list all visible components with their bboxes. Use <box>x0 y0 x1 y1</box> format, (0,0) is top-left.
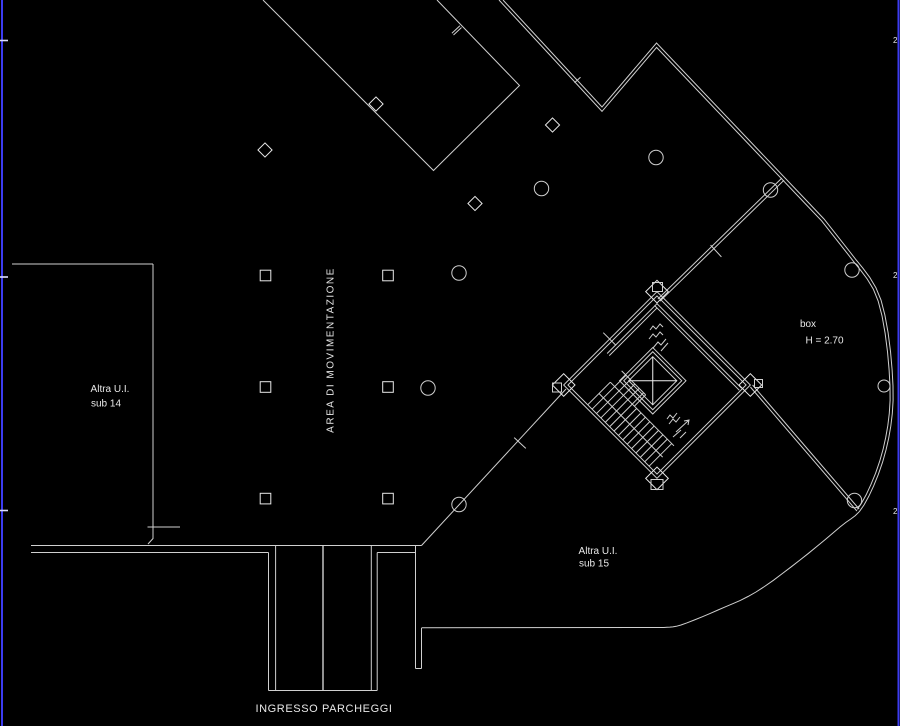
svg-text:Altra U.I.: Altra U.I. <box>91 384 130 395</box>
svg-text:2: 2 <box>893 36 898 45</box>
svg-text:H = 2.70: H = 2.70 <box>805 336 844 347</box>
svg-text:sub 14: sub 14 <box>91 399 121 410</box>
svg-text:AREA DI MOVIMENTAZIONE: AREA DI MOVIMENTAZIONE <box>326 267 337 433</box>
svg-text:box: box <box>800 319 816 330</box>
svg-text:2: 2 <box>893 271 898 280</box>
svg-text:INGRESSO PARCHEGGI: INGRESSO PARCHEGGI <box>255 703 392 715</box>
svg-text:sub 15: sub 15 <box>579 559 609 570</box>
svg-text:2: 2 <box>893 507 898 516</box>
svg-text:Altra U.I.: Altra U.I. <box>579 546 618 557</box>
